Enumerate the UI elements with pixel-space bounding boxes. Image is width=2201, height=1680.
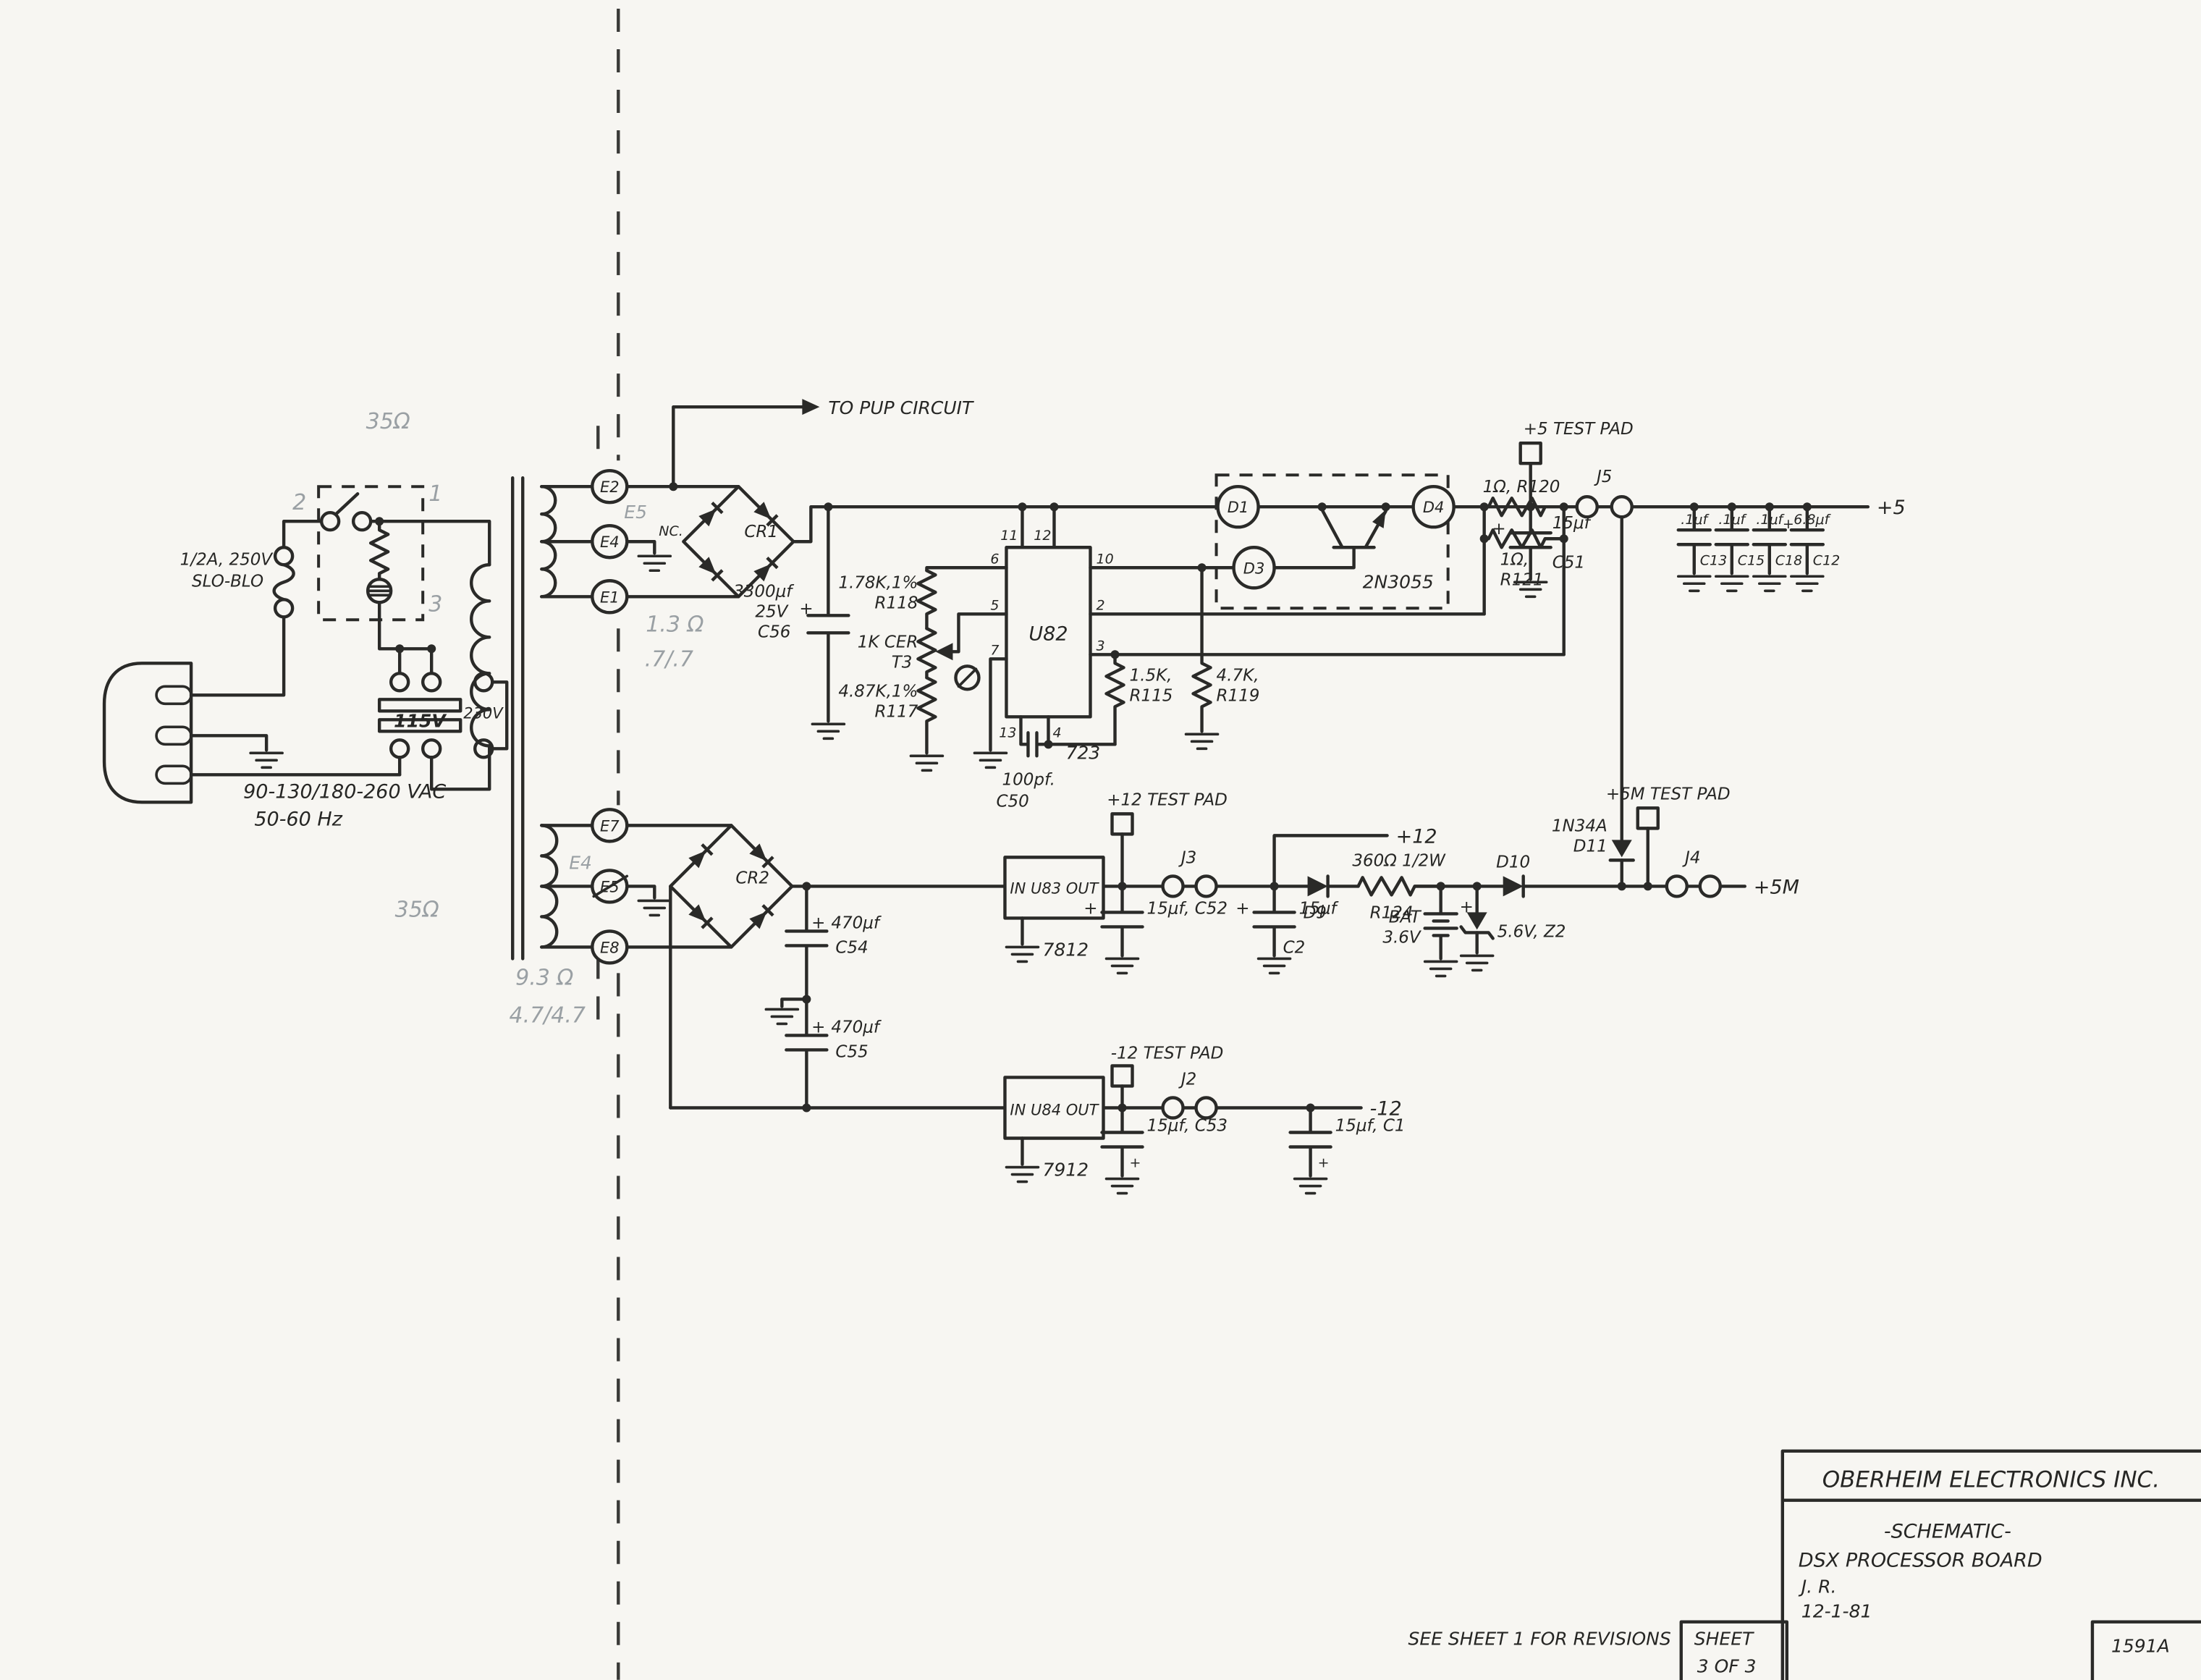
u82-pin4: 4 — [1052, 725, 1061, 740]
c50-name-label: C50 — [996, 792, 1028, 811]
transistor-type-label: 2N3055 — [1363, 571, 1434, 592]
c53-plus: + — [1130, 1155, 1141, 1171]
company-name: OBERHEIM ELECTRONICS INC. — [1822, 1467, 2160, 1493]
c53-value-label: 15μf, C53 — [1147, 1117, 1228, 1136]
minus12-output-label: -12 — [1370, 1097, 1402, 1120]
u82-pin7: 7 — [990, 642, 999, 658]
pass-transistor-group: D1 D3 D4 2N3055 — [1217, 475, 1454, 608]
c55-plus: + — [811, 1018, 825, 1037]
cr1-bridge: NC. CR1 — [627, 486, 793, 596]
fuse-type-label: SLO-BLO — [192, 572, 263, 591]
transformer-core — [512, 478, 523, 958]
fuse: 1/2A, 250V SLO-BLO — [180, 521, 321, 617]
d9-diode — [1308, 876, 1328, 896]
pencil-4p7-4p7: 4.7/4.7 — [509, 1002, 586, 1028]
selector-115v-label: 115V — [394, 710, 447, 731]
nc-label: NC. — [659, 523, 683, 539]
cr1-label: CR1 — [744, 523, 778, 541]
bat-name-label: BAT — [1389, 908, 1422, 926]
pencil-1p3-ohm: 1.3 Ω — [646, 612, 704, 637]
fuse-rating-label: 1/2A, 250V — [180, 550, 274, 569]
d10-label: D10 — [1496, 853, 1530, 871]
u82-pin10: 10 — [1096, 551, 1113, 567]
u82-pin2: 2 — [1096, 597, 1104, 613]
u84-label: IN U84 OUT — [1010, 1101, 1099, 1118]
r119-name-label: R119 — [1217, 686, 1260, 705]
voltage-selector: 115V 230V — [379, 673, 507, 789]
u82-pin5: 5 — [990, 597, 999, 613]
c54-plus: + — [811, 913, 825, 932]
u82-pin13: 13 — [999, 725, 1016, 740]
schematic-drawing: 1/2A, 250V SLO-BLO 115V 230V — [0, 0, 2201, 1680]
cr2-bridge: CR2 — [627, 825, 792, 1107]
c52-plus: + — [1083, 899, 1097, 918]
j5-label: J5 — [1594, 468, 1612, 486]
c51-plus: + — [1492, 520, 1505, 539]
plus5-test-pad — [1521, 443, 1541, 463]
c2-name-label: C2 — [1283, 938, 1306, 957]
u83-type-label: 7812 — [1042, 939, 1089, 960]
u84-type-label: 7912 — [1042, 1160, 1089, 1181]
r118-name-label: R118 — [875, 594, 918, 612]
c12-name-label: C12 — [1813, 552, 1840, 568]
c51-name-label: C51 — [1552, 553, 1585, 572]
plus12-output-label: +12 — [1396, 825, 1437, 848]
pencil-e5: E5 — [624, 502, 647, 523]
plus5m-test-pad — [1638, 808, 1658, 828]
pencil-switch-3: 3 — [428, 591, 442, 617]
to-pup-circuit-label: TO PUP CIRCUIT — [828, 397, 974, 418]
doc-type: -SCHEMATIC- — [1884, 1521, 2011, 1543]
schematic-page: 1/2A, 250V SLO-BLO 115V 230V — [0, 0, 2201, 1680]
d10-diode — [1503, 876, 1524, 896]
plus12-test-pad-label: +12 TEST PAD — [1107, 790, 1228, 809]
c18-value-label: .1μf — [1756, 512, 1785, 528]
c13-name-label: C13 — [1700, 552, 1727, 568]
c56-plus: + — [799, 599, 813, 618]
r121-value-label: 1Ω, — [1500, 550, 1529, 569]
r120-label: 1Ω, R120 — [1483, 478, 1560, 497]
c54-name-label: C54 — [835, 938, 868, 957]
c54-value-label: 470μf — [831, 913, 882, 932]
u83-label: IN U83 OUT — [1010, 879, 1099, 897]
j5-jumper — [1577, 497, 1597, 517]
c15-value-label: .1μf — [1718, 512, 1747, 528]
d11-type-label: 1N34A — [1552, 816, 1608, 835]
pencil-35ohm-top: 35Ω — [366, 409, 410, 434]
r117-value-label: 4.87K,1% — [838, 682, 918, 701]
ac-frequency-label: 50-60 Hz — [254, 808, 342, 830]
j4-label: J4 — [1682, 848, 1700, 867]
c12-value-label: 6.8μf — [1794, 512, 1831, 528]
c12-plus: + — [1783, 516, 1794, 532]
sheet-number: 3 OF 3 — [1697, 1656, 1757, 1677]
backup-battery: + BAT 3.6V — [1382, 886, 1474, 976]
d3-label: D3 — [1243, 560, 1265, 577]
ac-voltage-range-label: 90-130/180-260 VAC — [243, 780, 446, 803]
minus12-test-pad — [1112, 1065, 1133, 1086]
terminal-e2: E2 — [600, 478, 620, 496]
pencil-p7-p7: .7/.7 — [645, 646, 693, 672]
bat-voltage-label: 3.6V — [1382, 928, 1422, 947]
zener-z2: 5.6V, Z2 — [1461, 886, 1566, 970]
pencil-35ohm-bottom: 35Ω — [395, 897, 439, 922]
minus12-rail: IN U84 OUT 7912 -12 TEST PAD 15μf, C53 +… — [670, 1044, 1405, 1193]
u82-pin11: 11 — [1000, 528, 1018, 544]
c56-voltage-label: 25V — [755, 602, 789, 621]
t3-value-label: 1K CER — [858, 633, 918, 651]
sheet-label: SHEET — [1694, 1629, 1754, 1650]
d9-label: D9 — [1304, 903, 1327, 922]
c54-c55-filter-caps: + 470μf C54 + 470μf C55 — [766, 886, 882, 1107]
voltage-switch — [318, 486, 489, 673]
c15-name-label: C15 — [1738, 552, 1765, 568]
j3-jumper — [1163, 876, 1183, 896]
terminal-e4: E4 — [600, 533, 620, 551]
plus5m-output-label: +5M — [1754, 876, 1799, 898]
z2-label: 5.6V, Z2 — [1497, 922, 1566, 941]
ac-plug-icon — [104, 663, 191, 802]
c50-value-label: 100pf. — [1002, 770, 1055, 789]
pencil-switch-2: 2 — [292, 490, 306, 515]
plus5m-test-pad-label: +5M TEST PAD — [1606, 785, 1731, 803]
j4-jumper — [1667, 876, 1687, 896]
plus5-test-pad-label: +5 TEST PAD — [1524, 420, 1634, 439]
ac-ground-symbol — [250, 753, 282, 767]
doc-number: 1591A — [2111, 1636, 2170, 1657]
plus5-bypass-caps: .1μf .1μf .1μf 6.8μf + C13 C15 C18 C12 — [1678, 507, 1841, 591]
d1-label: D1 — [1228, 499, 1249, 516]
j2-label: J2 — [1178, 1070, 1196, 1089]
c56-value-label: 3300μf — [733, 582, 794, 601]
terminal-e8: E8 — [600, 939, 620, 956]
plus12-rail: IN U83 OUT 7812 +12 TEST PAD + 15μf, C52… — [792, 517, 1799, 976]
c13-value-label: .1μf — [1681, 512, 1710, 528]
t3-name-label: T3 — [892, 653, 913, 672]
r124-value-label: 360Ω 1/2W — [1352, 851, 1446, 870]
board-name: DSX PROCESSOR BOARD — [1799, 1550, 2042, 1572]
c55-name-label: C55 — [835, 1042, 868, 1061]
pencil-9p3-ohm: 9.3 Ω — [515, 965, 573, 990]
c18-name-label: C18 — [1775, 552, 1802, 568]
r115-name-label: R115 — [1130, 686, 1173, 705]
u82-pin12: 12 — [1034, 528, 1051, 544]
junction-dots — [375, 482, 1812, 1112]
plus12-test-pad — [1112, 814, 1133, 834]
cr2-label: CR2 — [735, 869, 769, 887]
r117-name-label: R117 — [875, 702, 918, 721]
j2-jumper — [1163, 1097, 1183, 1118]
transistor-emitter-arrow — [1372, 510, 1386, 528]
terminal-e1: E1 — [600, 588, 620, 606]
fold-line — [598, 9, 618, 1680]
pencil-switch-1: 1 — [428, 481, 442, 507]
title-block: OBERHEIM ELECTRONICS INC. -SCHEMATIC- DS… — [1408, 1451, 2201, 1680]
u82-pin3: 3 — [1096, 638, 1104, 654]
r115-value-label: 1.5K, — [1130, 666, 1173, 685]
d4-label: D4 — [1423, 499, 1445, 516]
u82-pin6: 6 — [990, 551, 999, 567]
c1-plus: + — [1318, 1155, 1330, 1171]
doc-date: 12-1-81 — [1801, 1601, 1872, 1622]
ac-input-section: 1/2A, 250V SLO-BLO 115V 230V — [104, 486, 507, 830]
j3-label: J3 — [1178, 848, 1196, 867]
d11-name-label: D11 — [1573, 837, 1608, 856]
pencil-e4: E4 — [569, 852, 592, 873]
pup-branch: TO PUP CIRCUIT — [673, 397, 974, 486]
r121-name-label: R121 — [1500, 570, 1544, 589]
revision-note: SEE SHEET 1 FOR REVISIONS — [1408, 1629, 1671, 1650]
terminal-e7: E7 — [600, 817, 620, 835]
plus5-output-label: +5 — [1877, 497, 1906, 519]
r118-value-label: 1.78K,1% — [838, 573, 918, 592]
c52-value-label: 15μf, C52 — [1147, 899, 1228, 918]
r119-value-label: 4.7K, — [1217, 666, 1259, 685]
t3-wiper-arrow — [935, 643, 952, 660]
minus12-test-pad-label: -12 TEST PAD — [1111, 1044, 1224, 1063]
c55-value-label: 470μf — [831, 1018, 882, 1037]
author-initials: J. R. — [1798, 1576, 1837, 1597]
c2-plus: + — [1235, 899, 1249, 918]
c56-name-label: C56 — [758, 622, 790, 641]
u82-label: U82 — [1028, 622, 1068, 645]
